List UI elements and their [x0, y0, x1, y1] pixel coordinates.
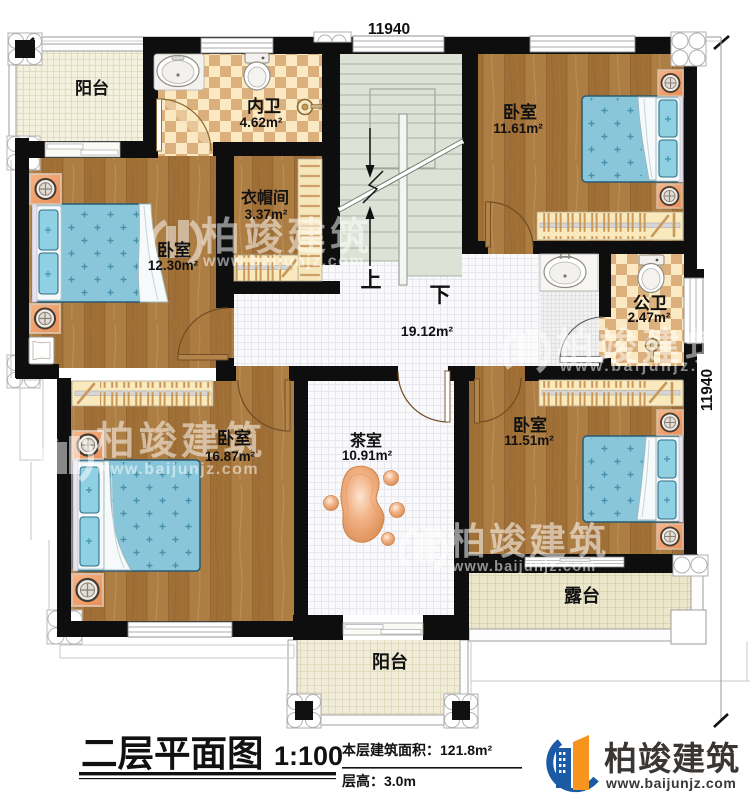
svg-text:卧室: 卧室: [503, 102, 537, 122]
svg-text:11940: 11940: [699, 369, 716, 411]
svg-text:下: 下: [430, 284, 451, 307]
svg-text:19.12m²: 19.12m²: [401, 323, 453, 339]
svg-text:内卫: 内卫: [247, 96, 281, 116]
svg-text:本层建筑面积：121.8m²: 本层建筑面积：121.8m²: [342, 742, 492, 758]
svg-text:1:100: 1:100: [274, 741, 343, 771]
svg-text:www.baijunjz.com: www.baijunjz.com: [202, 253, 365, 270]
svg-text:4.62m²: 4.62m²: [240, 115, 283, 130]
svg-text:16.87m²: 16.87m²: [205, 449, 256, 464]
svg-text:层高：3.0m: 层高：3.0m: [342, 773, 416, 789]
svg-text:11.51m²: 11.51m²: [504, 433, 554, 448]
svg-text:www.baijunjz.com: www.baijunjz.com: [451, 559, 596, 575]
svg-text:露台: 露台: [564, 585, 600, 606]
svg-text:11.61m²: 11.61m²: [493, 121, 543, 136]
svg-text:衣帽间: 衣帽间: [241, 188, 289, 207]
svg-text:10.91m²: 10.91m²: [342, 448, 393, 463]
svg-text:12.30m²: 12.30m²: [148, 258, 199, 273]
svg-text:卧室: 卧室: [217, 428, 251, 448]
svg-text:柏竣建筑: 柏竣建筑: [449, 520, 609, 562]
svg-text:阳台: 阳台: [372, 651, 408, 672]
svg-text:阳台: 阳台: [75, 78, 109, 98]
svg-text:卧室: 卧室: [157, 240, 191, 260]
svg-text:3.37m²: 3.37m²: [245, 207, 288, 222]
svg-text:二层平面图: 二层平面图: [81, 733, 264, 774]
svg-text:www.baijunjz.com: www.baijunjz.com: [605, 775, 736, 791]
svg-text:11940: 11940: [368, 21, 410, 38]
svg-text:2.47m²: 2.47m²: [628, 310, 671, 325]
svg-text:上: 上: [361, 269, 382, 292]
svg-text:柏竣建筑: 柏竣建筑: [604, 740, 740, 777]
svg-text:卧室: 卧室: [513, 415, 547, 435]
